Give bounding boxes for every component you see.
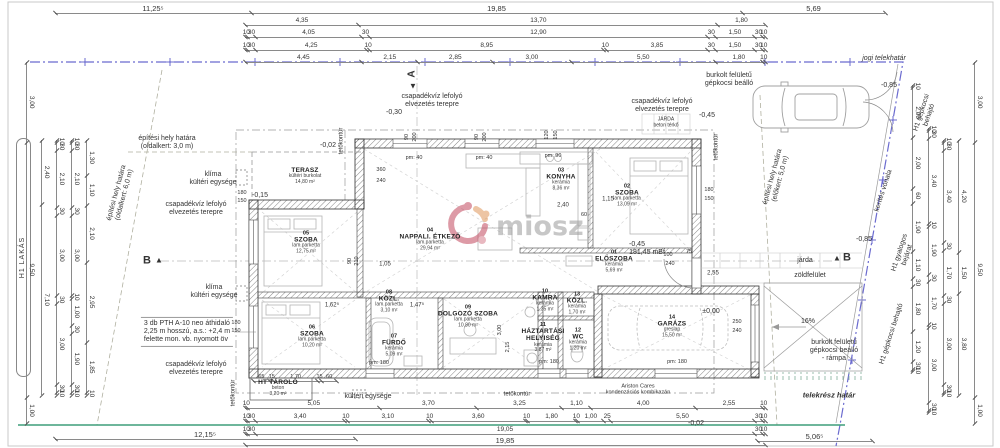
elevation-minus002-terasz: -0,02 [320, 142, 336, 150]
annotation-60: pm: 180 [539, 359, 559, 365]
dim-row-2: 10304,053012,90301,503010 [245, 28, 765, 38]
elevation-minus085-top: -0,85 [881, 82, 897, 90]
dim-segment: 9,50 [26, 142, 37, 397]
dim-value: 19,85 [496, 437, 515, 445]
hvac-outdoor-unit-note-3: kültéri egysége [344, 393, 391, 401]
dim-value: 60 [914, 192, 921, 199]
floor-plan-canvas: H1 LAKÁS miosz 11,25⁵19,855,694,3513,701… [0, 0, 1000, 448]
dim-segment: 1,20 [912, 332, 923, 362]
dim-value: 2,95 [88, 296, 95, 309]
annotation-79: 210 [354, 256, 360, 265]
dim-row-12: 3,009,501,00 [26, 62, 36, 424]
section-marker-b-right: B [843, 252, 851, 265]
dim-segment: 2,00 [912, 138, 923, 188]
dim-segment: 4,20 [958, 140, 969, 253]
gepkocsi-beallo-label: burkolt felületű gépkocsi beálló [705, 72, 753, 88]
rainwater-note-3: csapadékvíz lefolyó elvezetés terepre [165, 201, 226, 217]
elevation-garage-zero: ±0,00 [702, 308, 719, 316]
annotation-64: 360 [376, 167, 385, 173]
room-area: 12,75 m² [292, 250, 320, 256]
sidewalk-label: járda [797, 257, 813, 265]
dim-segment: 1,00 [71, 298, 82, 325]
dim-row-10: 5,06⁵ [757, 432, 872, 442]
dim-value: 5,50 [637, 55, 650, 62]
dim-value: 1,10 [570, 401, 583, 408]
room-label-k-zl-: 08KÖZL.lam.parketta3,10 m² [375, 290, 403, 315]
dim-value: 60 [326, 375, 332, 381]
dim-value: 1,00 [976, 404, 983, 417]
dim-segment: 5,50 [610, 411, 754, 422]
dim-value: 10 [930, 408, 937, 415]
annotation-67: 60 [581, 212, 587, 218]
room-label-terasz: TERASZkültéri burkolat14,80 m² [289, 167, 322, 185]
dim-value: 19,85 [487, 5, 506, 13]
dim-value: 3,70 [422, 401, 435, 408]
dim-segment: 3,00 [974, 62, 985, 142]
dim-value: 2,10 [73, 173, 80, 186]
dim-segment: 5,69 [742, 3, 885, 14]
annotation-73: 240 [665, 261, 674, 267]
room-area: 13,09 m² [613, 203, 641, 209]
dim-segment: 9,50 [974, 142, 985, 397]
dim-segment: 10 [71, 392, 82, 395]
dim-row-1: 4,3513,701,80 [245, 16, 765, 26]
dim-segment: 5,50 [571, 52, 715, 63]
dim-value: 13,70 [530, 18, 546, 25]
ramp-slope-label: 16% [801, 318, 815, 326]
dim-segment: 3,00 [26, 62, 37, 142]
dim-value: 7,10 [43, 293, 50, 306]
room-area: 3,20 m² [258, 392, 298, 398]
annotation-51: pm: 40 [476, 155, 493, 161]
dim-value: 5,50 [676, 414, 689, 421]
dim-value: 3,40 [294, 414, 307, 421]
dim-segment: 1,00 [974, 397, 985, 424]
dim-value: 2,15 [383, 55, 396, 62]
dim-value: 1,70 [930, 297, 937, 310]
dim-value: 5,05 [307, 401, 320, 408]
dim-row-16: 1,301,102,102,951,8510 [86, 140, 96, 395]
annotation-69: 1,05 [379, 262, 391, 269]
dim-segment: 1,70 [928, 282, 939, 325]
roof-contour-label-4: tetőkontúr [231, 380, 238, 407]
annotation-63: 240 [732, 328, 741, 334]
dim-value: 4,35 [296, 18, 309, 25]
annotation-65: 240 [376, 178, 385, 184]
dim-segment: 1,70 [943, 250, 954, 296]
elevation-minus045-eloszoba: -0,45 [629, 241, 645, 249]
dim-value: 2,40 [43, 166, 50, 179]
dim-segment: 3,80 [958, 293, 969, 395]
dim-row-5: 105,053,703,251,104,002,5510 [245, 399, 765, 409]
dim-row-17: 3,009,501,00 [974, 62, 984, 424]
room-area: 8,36 m² [546, 187, 575, 193]
dim-row-4: 4,452,152,853,005,501,8010 [245, 53, 765, 63]
section-marker-b-right-arrow: ▲ [833, 253, 841, 262]
room-label-el-szoba: 01ELŐSZOBAkerámia5,69 m² [595, 250, 633, 275]
dim-segment: 1,90 [928, 226, 939, 274]
dim-value: 12,15⁵ [194, 431, 216, 439]
dim-segment: 4,05 [255, 27, 361, 38]
dim-value: 10 [88, 390, 95, 397]
roof-contour-label-1: tetőkontúr [339, 128, 346, 155]
dim-segment: 2,10 [86, 205, 97, 262]
legal-boundary-line [30, 62, 903, 446]
annotation-68: 1,15 [602, 197, 614, 204]
dim-segment: 8,95 [369, 40, 603, 51]
dim-segment: 5,06⁵ [757, 431, 872, 442]
annotation-45: 200 [412, 132, 418, 141]
dim-value: 1,70 [945, 267, 952, 280]
dim-value: 8,95 [480, 43, 493, 50]
dim-segment: 3,60 [431, 411, 525, 422]
dim-segment: 19,85 [251, 3, 742, 14]
dim-segment: 12,90 [369, 27, 707, 38]
watermark-text: miosz [496, 211, 584, 242]
dim-value: 1,80 [545, 414, 558, 421]
dim-segment: 3,40 [943, 151, 954, 242]
dim-value: 1,10 [88, 184, 95, 197]
dim-value: 19,05 [497, 427, 513, 434]
room-area: 3,10 m² [375, 309, 403, 315]
dim-segment: 1,00 [26, 397, 37, 424]
room-label-dolgoz-szoba: 09DOLGOZÓ SZOBAlam.parketta10,80 m² [438, 305, 498, 330]
room-label-nappali-tkez-: 04NAPPALI. ÉTKEZŐlam.parketta29,94 m² [399, 228, 460, 253]
dim-segment: 2,55 [696, 398, 763, 409]
dim-value: 10 [760, 414, 767, 421]
dim-value: 4,25 [305, 43, 318, 50]
roof-contour-label-2: tetőkontúr [714, 134, 721, 161]
dim-segment: 1,00 [578, 411, 604, 422]
dim-value: 3,40 [945, 190, 952, 203]
room-label-k-zl-: 13KÖZL.kerámia1,70 m² [567, 292, 588, 317]
section-marker-b-left: B [143, 255, 151, 268]
dim-segment: 1,80 [528, 411, 575, 422]
annotation-49: 150 [553, 130, 559, 139]
dim-value: 1,90 [914, 221, 921, 234]
dim-value: 1,80 [732, 55, 745, 62]
dim-value: 1,50 [960, 267, 967, 280]
annotation-71: 1,47⁵ [410, 303, 424, 310]
elevation-minus045-top: -0,45 [699, 112, 715, 120]
dim-segment: 10 [762, 40, 765, 51]
dim-row-15: 10302,10303,00101,00301,903010 [71, 140, 81, 395]
site-boundary-note-side3: építési hely határa (oldalkert: 3,0 m) [138, 135, 195, 151]
room-label-kamra: 10KAMRAkerámia1,35 m² [532, 289, 557, 314]
dim-segment: 3,25 [477, 398, 562, 409]
annotation-56: 150 [237, 198, 246, 204]
dim-segment: 3,85 [607, 40, 708, 51]
dim-segment: 3,70 [380, 398, 477, 409]
dim-value: 5,69 [806, 5, 821, 13]
dim-value: 3,00 [73, 249, 80, 262]
annotation-72: 100 [663, 252, 672, 258]
dim-segment: 1,50 [958, 253, 969, 293]
dim-segment: 3,00 [493, 52, 572, 63]
dim-row-14: 10302,10303,00303,003010 [56, 140, 66, 395]
grass-ticks [764, 372, 862, 380]
room-area: 5,09 m² [382, 353, 406, 359]
green-area-label: zöldfelület [794, 272, 826, 280]
annotation-58: 150 [231, 328, 240, 334]
dim-value: 3,40 [930, 175, 937, 188]
dim-value: 1,85 [88, 361, 95, 374]
dim-segment: 2,40 [41, 140, 52, 204]
dim-segment: 1,85 [86, 342, 97, 392]
dim-value: 3,00 [526, 55, 539, 62]
dim-segment: 10 [762, 52, 765, 63]
dim-value: 2,10 [58, 173, 65, 186]
dim-segment: 11,25⁵ [55, 3, 251, 14]
annotation-57: 180 [231, 320, 240, 326]
annotation-78: 90 [347, 258, 353, 264]
dim-value: 1,30 [88, 151, 95, 164]
dim-segment: 3,00 [56, 304, 67, 385]
lintel-note: 3 db PTH A-10 neo áthidaló 2,25 m hosszú… [141, 317, 233, 347]
dim-segment: 10 [762, 411, 765, 422]
dim-value: 10 [73, 390, 80, 397]
dim-value: 2,10 [88, 227, 95, 240]
dim-value: 1,20 [914, 340, 921, 353]
dim-value: 1,00 [28, 404, 35, 417]
dim-segment: 4,25 [255, 40, 366, 51]
dim-row-18: 4,201,503,80 [958, 140, 968, 395]
dim-segment: 1,90 [71, 333, 82, 384]
annotation-59: pm: 180 [369, 360, 389, 366]
dim-row-20: 10303,40101,90301,70103,003010 [928, 128, 938, 413]
dim-segment: 1,50 [715, 27, 754, 38]
boiler-note: Ariston Cares kondenzációs kombikazán [606, 384, 671, 397]
section-marker-b-left-arrow: ▲ [155, 255, 163, 264]
car-icon [753, 82, 869, 132]
section-marker-a: A [406, 70, 418, 77]
annotation-47: 200 [482, 132, 488, 141]
rainwater-note-1: csapadékvíz lefolyó elvezetés terepre [401, 93, 462, 109]
annotation-50: pm: 40 [406, 155, 423, 161]
dim-segment: 1,80 [718, 15, 765, 26]
room-area: 10,20 m² [298, 344, 326, 350]
dim-value: 3,85 [651, 43, 664, 50]
dim-segment: 1,30 [86, 140, 97, 175]
dim-value: 1,00 [73, 305, 80, 318]
dim-value: 3,10 [381, 414, 394, 421]
dim-value: 3,00 [976, 96, 983, 109]
dim-segment: 3,00 [928, 327, 939, 403]
dim-value: 3,00 [930, 359, 937, 372]
room-area: 3,87 m² [521, 348, 564, 354]
dim-value: 3,25 [513, 401, 526, 408]
rainwater-note-4: csapadékvíz lefolyó elvezetés terepre [165, 361, 226, 377]
annotation-66: 2,40 [557, 203, 569, 210]
rainwater-note-2: csapadékvíz lefolyó elvezetés terepre [631, 98, 692, 114]
annotation-46: 90 [474, 134, 480, 140]
dim-segment: 2,10 [56, 151, 67, 207]
hvac-outdoor-unit-note-1: klíma kültéri egysége [189, 171, 236, 187]
dim-segment: 3,00 [71, 215, 82, 296]
dim-segment: 10 [762, 27, 765, 38]
annotation-52: pm: 90 [545, 153, 562, 159]
room-label-szoba: 05SZOBAlam.parketta12,75 m² [292, 231, 320, 256]
dim-row-0: 11,25⁵19,855,69 [55, 4, 885, 14]
room-area: 15,50 m² [658, 334, 687, 340]
dim-segment: 60 [321, 371, 337, 382]
dim-segment: 3,00 [943, 304, 954, 385]
dim-row-19: 10303,40301,70303,003010 [943, 140, 953, 395]
dim-value: 10 [914, 367, 921, 374]
annotation-75: 2,55 [707, 271, 719, 278]
dim-row-3: 10304,25108,95103,85301,503010 [245, 41, 765, 51]
dim-segment: 10 [912, 369, 923, 372]
dim-value: 3,00 [945, 338, 952, 351]
dim-segment: 2,85 [418, 52, 493, 63]
annotation-70: 1,62⁵ [325, 303, 339, 310]
dim-value: 10 [58, 390, 65, 397]
dim-row-13: 2,407,10 [41, 140, 51, 395]
dim-value: 1,10 [914, 259, 921, 272]
room-label-gar-zs: 14GARÁZSgreslap15,50 m² [658, 315, 687, 340]
dim-value: 4,05 [302, 30, 315, 37]
dim-value: 10 [760, 55, 767, 62]
room-label-ht-t-rol-: HT TÁROLÓbeton3,20 m² [258, 379, 298, 397]
section-marker-a-arrow: ▼ [409, 81, 417, 90]
dim-segment: 3,40 [255, 411, 344, 422]
room-area: 5,69 m² [595, 269, 633, 275]
annotation-74: 75 [686, 249, 692, 255]
dim-segment: 10 [86, 392, 97, 395]
dim-segment: 4,45 [245, 52, 362, 63]
dim-value: 3,00 [28, 96, 35, 109]
room-area: 14,80 m² [289, 180, 322, 186]
dim-segment: 2,95 [86, 262, 97, 342]
dim-value: 1,90 [73, 352, 80, 365]
ramp-label: burkolt felületű gépkocsi beálló - rámpa [810, 339, 858, 363]
room-label-szoba: 06SZOBAlam.parketta10,20 m² [298, 325, 326, 350]
room-area: 1,70 m² [567, 311, 588, 317]
dim-segment: 13,70 [359, 15, 718, 26]
elevation-minus002-bottom: -0,02 [688, 420, 704, 428]
annotation-62: 250 [732, 319, 741, 325]
dim-value: 3,80 [960, 338, 967, 351]
annotation-77: 2,15 [505, 342, 511, 353]
room-area: 1,35 m² [532, 308, 557, 314]
dim-value: 30 [930, 274, 937, 281]
elevation-mbf: 181,45 mBf [629, 249, 665, 257]
dim-value: 12,90 [530, 30, 546, 37]
room-area: 29,94 m² [399, 247, 460, 253]
annotation-61: pm: 180 [667, 359, 687, 365]
elevation-minus030: -0,30 [386, 109, 402, 117]
dim-segment: 10 [762, 398, 765, 409]
dim-segment: 1,10 [912, 251, 923, 279]
dim-segment: 12,15⁵ [55, 429, 355, 440]
dim-value: 1,50 [729, 43, 742, 50]
dim-segment: 3,10 [347, 411, 428, 422]
dim-segment: 1,10 [562, 398, 591, 409]
elevation-minus085-mid: -0,85 [856, 236, 872, 244]
room-label-f-rd-: 07FÜRDŐkerámia5,09 m² [382, 334, 406, 359]
dim-segment: 10 [928, 410, 939, 413]
dim-segment: 3,40 [928, 138, 939, 224]
dim-value: 10 [760, 30, 767, 37]
dim-segment: 7,10 [41, 204, 52, 395]
elevation-minus015-terasz: -0,15 [252, 192, 268, 200]
annotation-44: 90 [404, 134, 410, 140]
room-label-h-ztart-si-helyis-g: 11HÁZTARTÁSI HELYISÉGkerámia3,87 m² [521, 322, 564, 354]
room-label-szoba: 02SZOBAlam.parketta13,09 m² [613, 184, 641, 209]
annotation-54: 150 [704, 196, 713, 202]
dim-segment: 1,50 [715, 40, 754, 51]
dim-segment: 1,10 [86, 175, 97, 205]
dim-row-6: 10303,40103,10103,60101,80101,00255,5030… [245, 412, 765, 422]
dim-value: 1,50 [729, 30, 742, 37]
dim-segment: 1,80 [912, 286, 923, 331]
dim-value: 1,90 [930, 244, 937, 257]
dim-value: 1,80 [735, 18, 748, 25]
dim-segment: 1,80 [715, 52, 762, 63]
dim-value: 10 [760, 43, 767, 50]
dim-value: 5,06⁵ [806, 433, 824, 441]
dim-segment: 10 [943, 392, 954, 395]
jogi-telekhatar-label: jogi telekhatár [862, 55, 906, 63]
roof-contour-label-3: tetőkontúr [504, 392, 531, 399]
telekresz-hatar-label: telekrész határ [803, 392, 856, 401]
dim-segment: 3,00 [56, 215, 67, 296]
dim-segment: 2,10 [71, 151, 82, 207]
room-area: 1,20 m² [569, 347, 587, 353]
dim-value: 2,85 [449, 55, 462, 62]
dim-segment: 4,00 [591, 398, 696, 409]
dim-value: 4,45 [297, 55, 310, 62]
dim-value: 9,50 [976, 263, 983, 276]
room-label-wc: 12WCkerámia1,20 m² [569, 328, 587, 353]
hvac-outdoor-unit-note-2: klíma kültéri egysége [190, 284, 237, 300]
dim-row-9: 12,15⁵ [55, 430, 355, 440]
dim-value: 3,00 [58, 338, 65, 351]
dim-segment: 10 [56, 392, 67, 395]
dim-segment: 4,35 [245, 15, 359, 26]
dim-value: 1,80 [914, 303, 921, 316]
dim-value: 10 [760, 401, 767, 408]
dim-value: 2,00 [914, 157, 921, 170]
annotation-53: 180 [704, 187, 713, 193]
dim-value: 4,20 [960, 190, 967, 203]
room-label-konyha: 03KONYHAkerámia8,36 m² [546, 168, 575, 193]
dim-segment: 2,15 [362, 52, 418, 63]
annotation-55: 180 [237, 190, 246, 196]
dim-value: 4,00 [637, 401, 650, 408]
annotation-48: 120 [544, 130, 550, 139]
dim-value: 11,25⁵ [142, 5, 163, 13]
dim-value: 9,50 [28, 263, 35, 276]
room-area: 10,80 m² [438, 324, 498, 330]
dim-value: 10 [945, 390, 952, 397]
dim-value: 1,00 [584, 414, 597, 421]
dim-value: 3,00 [58, 249, 65, 262]
dim-value: 3,60 [472, 414, 485, 421]
jarda-beton-label: JÁRDA beton térkő [653, 117, 678, 129]
dim-value: 2,55 [723, 401, 736, 408]
room-name: HÁZTARTÁSI HELYISÉG [521, 328, 564, 343]
